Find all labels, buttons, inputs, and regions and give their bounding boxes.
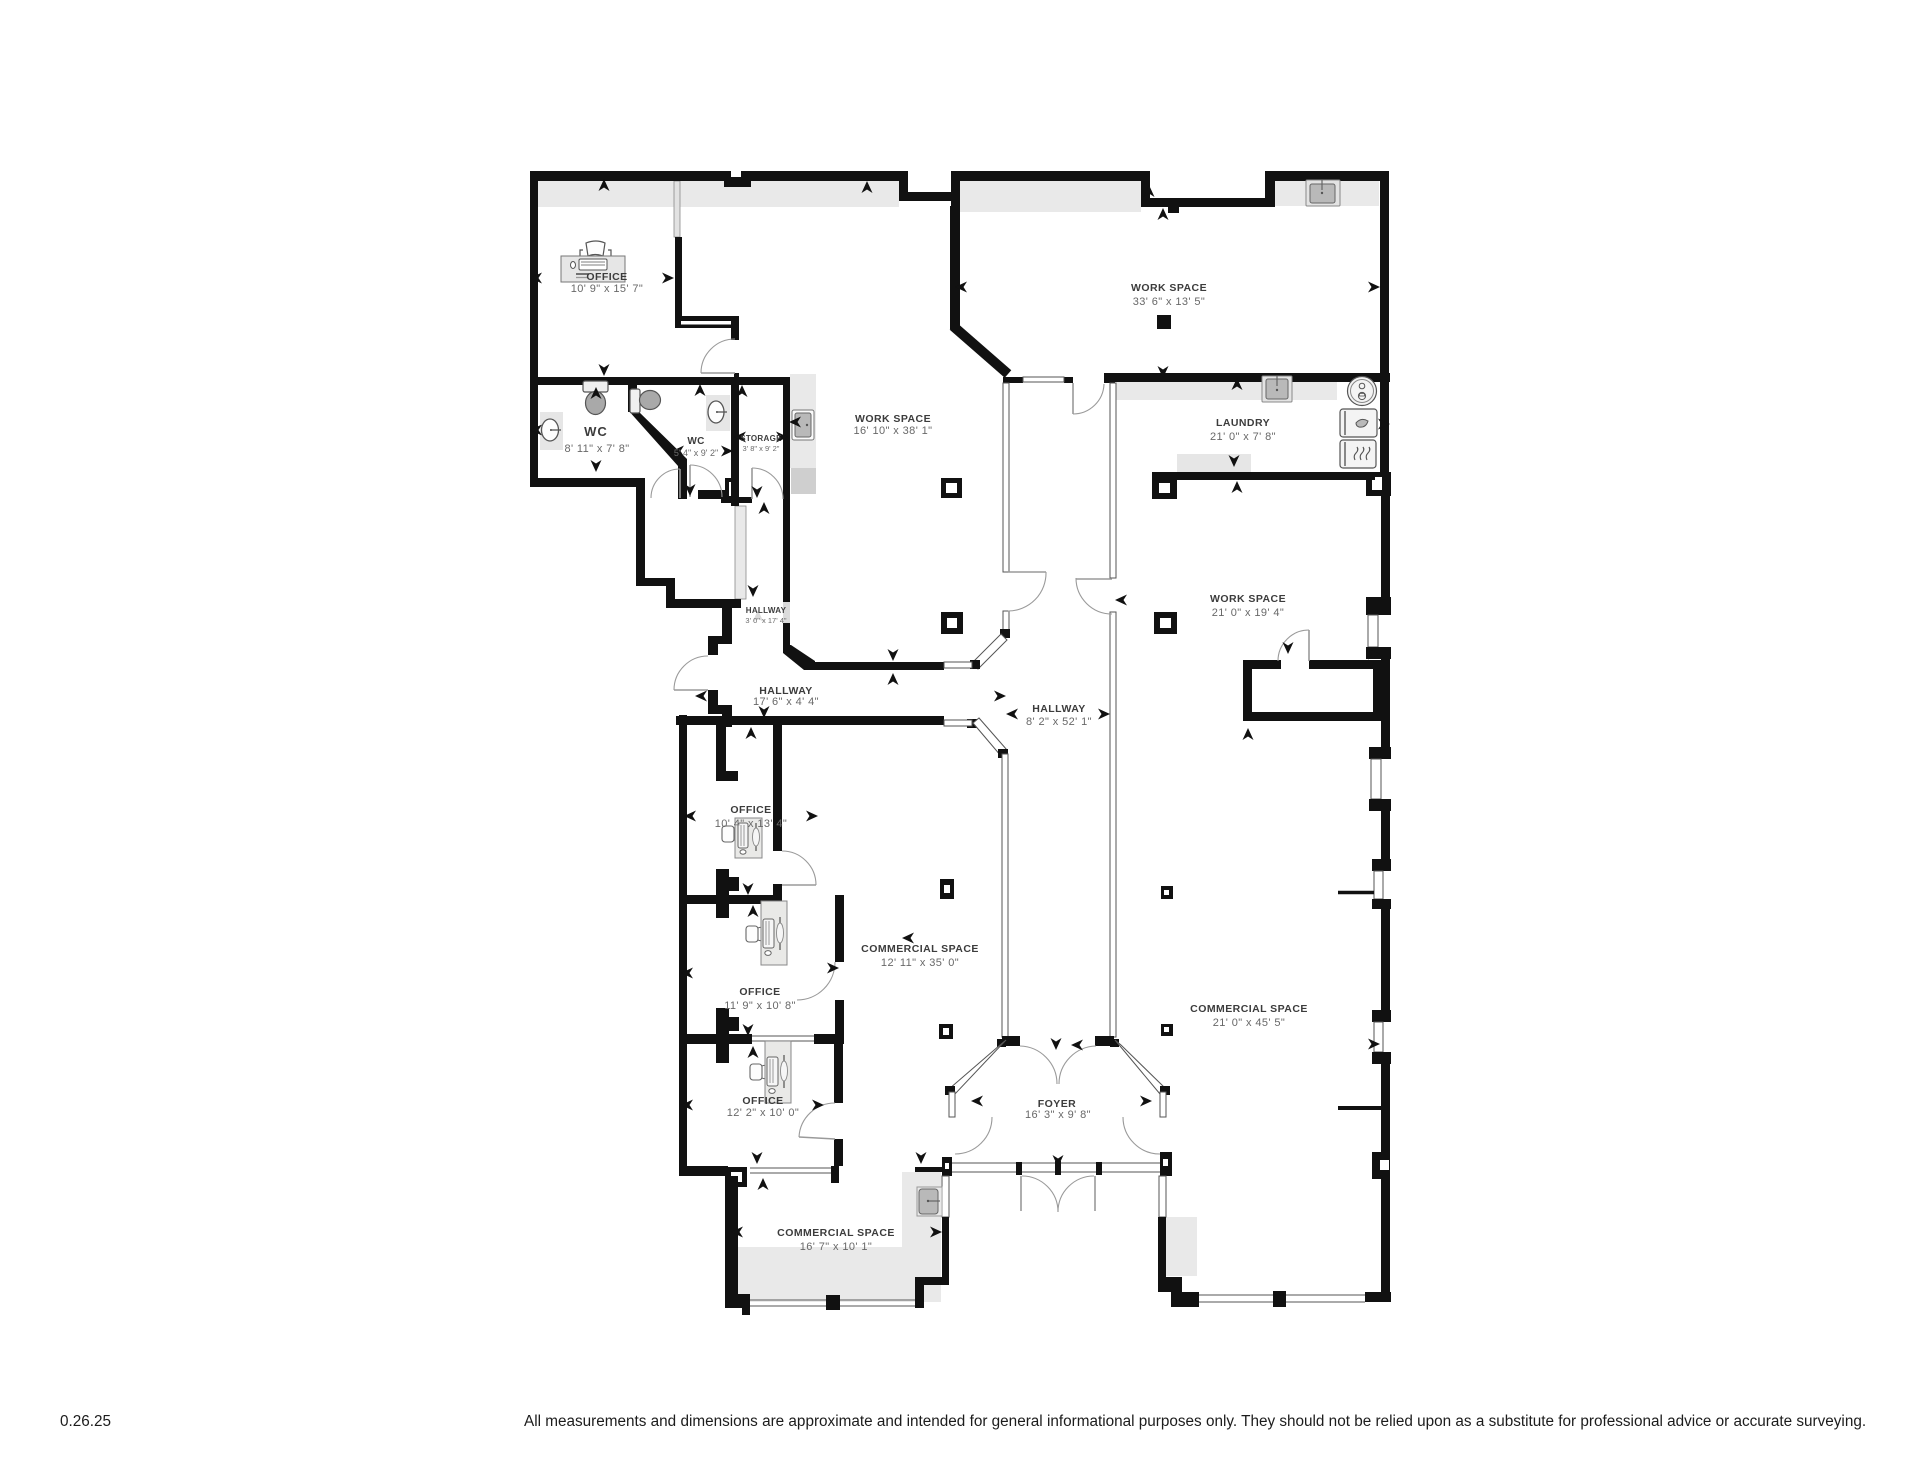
- svg-text:12' 2" x 10' 0": 12' 2" x 10' 0": [727, 1107, 799, 1119]
- svg-text:COMMERCIAL SPACE: COMMERCIAL SPACE: [777, 1227, 895, 1239]
- svg-text:COMMERCIAL SPACE: COMMERCIAL SPACE: [861, 943, 979, 955]
- svg-text:8' 2" x 52' 1": 8' 2" x 52' 1": [1026, 716, 1092, 728]
- svg-text:0.26.25: 0.26.25: [60, 1413, 111, 1430]
- svg-text:HALLWAY: HALLWAY: [1032, 703, 1086, 715]
- svg-text:OFFICE: OFFICE: [730, 804, 771, 816]
- svg-text:21' 0" x 7' 8": 21' 0" x 7' 8": [1210, 431, 1276, 443]
- svg-text:10' 4" x 13' 4": 10' 4" x 13' 4": [715, 818, 787, 830]
- svg-text:16' 3" x 9' 8": 16' 3" x 9' 8": [1025, 1109, 1091, 1121]
- svg-text:OFFICE: OFFICE: [739, 986, 780, 998]
- svg-text:3' 8" x 9' 2": 3' 8" x 9' 2": [743, 444, 780, 453]
- svg-text:11' 9" x 10' 8": 11' 9" x 10' 8": [724, 1000, 796, 1012]
- svg-text:17' 6" x 4' 4": 17' 6" x 4' 4": [753, 696, 819, 708]
- svg-text:12' 11" x 35' 0": 12' 11" x 35' 0": [881, 957, 959, 969]
- svg-text:All measurements and dimension: All measurements and dimensions are appr…: [524, 1413, 1866, 1430]
- svg-text:OFFICE: OFFICE: [586, 271, 627, 283]
- svg-text:LAUNDRY: LAUNDRY: [1216, 417, 1270, 429]
- svg-text:33' 6" x 13' 5": 33' 6" x 13' 5": [1133, 296, 1205, 308]
- svg-text:10' 9" x 15' 7": 10' 9" x 15' 7": [571, 283, 643, 295]
- svg-text:21' 0" x 45' 5": 21' 0" x 45' 5": [1213, 1017, 1285, 1029]
- svg-text:5' 4" x 9' 2": 5' 4" x 9' 2": [674, 448, 718, 458]
- svg-text:WORK SPACE: WORK SPACE: [1131, 282, 1207, 294]
- svg-text:COMMERCIAL SPACE: COMMERCIAL SPACE: [1190, 1003, 1308, 1015]
- svg-text:HALLWAY: HALLWAY: [746, 606, 787, 615]
- svg-text:3' 0" x 17' 4": 3' 0" x 17' 4": [745, 616, 786, 625]
- svg-text:16' 7" x 10' 1": 16' 7" x 10' 1": [800, 1241, 872, 1253]
- svg-text:WC: WC: [584, 424, 608, 439]
- svg-text:WC: WC: [687, 436, 704, 447]
- svg-text:21' 0" x 19' 4": 21' 0" x 19' 4": [1212, 607, 1284, 619]
- svg-text:16' 10" x 38' 1": 16' 10" x 38' 1": [854, 425, 933, 437]
- svg-text:WORK SPACE: WORK SPACE: [1210, 593, 1286, 605]
- svg-text:WORK SPACE: WORK SPACE: [855, 413, 931, 425]
- svg-text:STORAGE: STORAGE: [740, 434, 782, 443]
- svg-text:OFFICE: OFFICE: [742, 1095, 783, 1107]
- svg-text:8' 11" x 7' 8": 8' 11" x 7' 8": [564, 443, 629, 455]
